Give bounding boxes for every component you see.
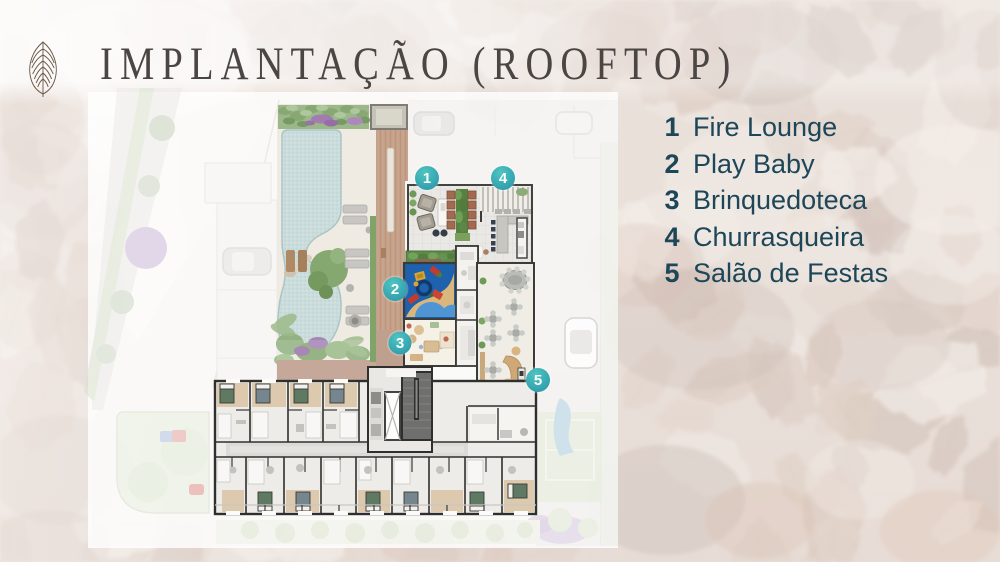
svg-text:4: 4	[499, 170, 508, 187]
svg-text:2: 2	[391, 281, 399, 298]
svg-text:3: 3	[396, 335, 404, 352]
svg-text:1: 1	[423, 170, 431, 187]
svg-text:5: 5	[534, 372, 542, 389]
